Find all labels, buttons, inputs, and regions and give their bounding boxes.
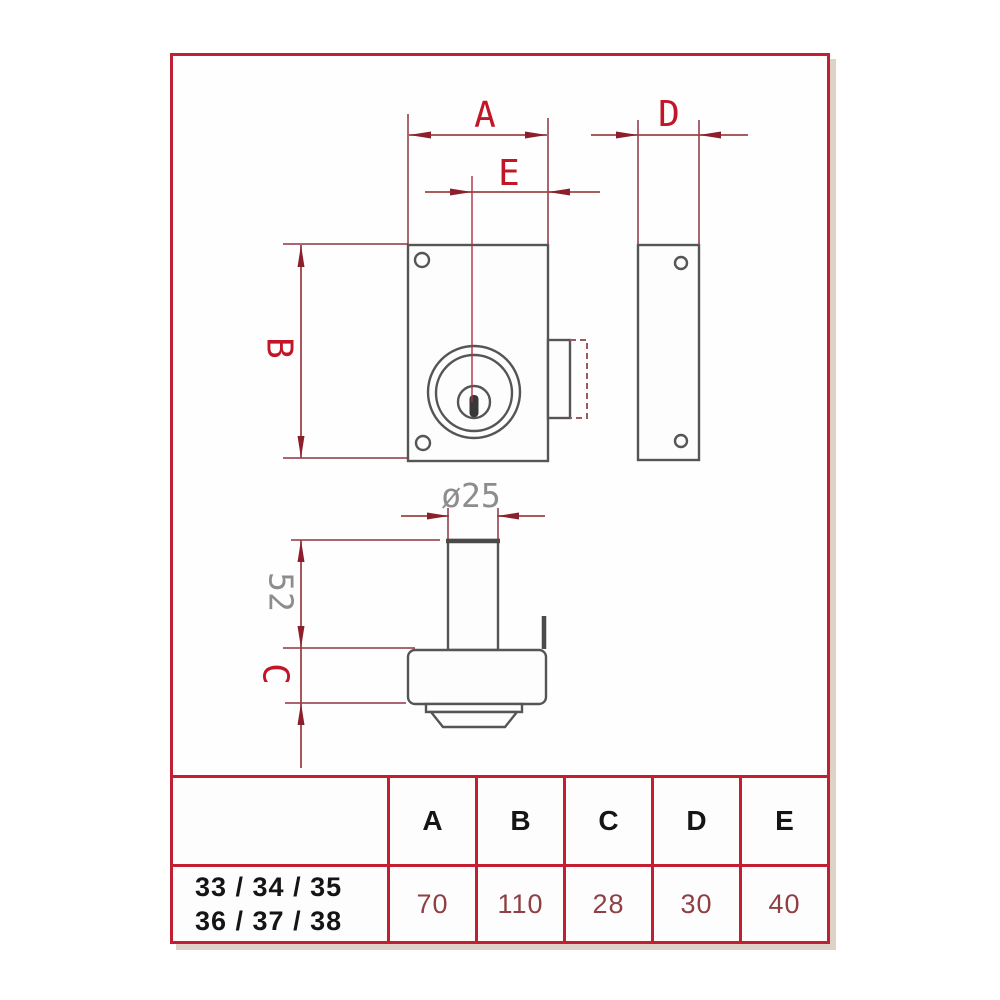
dimension-d: D <box>591 94 748 244</box>
model-numbers-line1: 33 / 34 / 35 <box>195 870 342 904</box>
latch-bolt <box>548 340 570 418</box>
front-view <box>408 245 587 461</box>
value-c: 28 <box>563 864 651 941</box>
mounting-hole-top <box>415 253 429 267</box>
label-a: A <box>474 95 496 136</box>
arrow-left-icon <box>409 132 431 139</box>
table-header-b: B <box>475 778 563 864</box>
arrow-right-icon <box>525 132 547 139</box>
dimension-a: A <box>408 95 548 244</box>
table-header-c: C <box>563 778 651 864</box>
label-b: B <box>258 337 299 359</box>
strike-hole-top <box>675 257 687 269</box>
key-slot <box>470 395 479 417</box>
arrow-left-icon <box>699 132 721 139</box>
table-header-e: E <box>739 778 827 864</box>
dimension-diameter: ø25 <box>401 476 545 539</box>
dimension-b: B <box>258 244 408 458</box>
model-numbers-cell: 33 / 34 / 35 36 / 37 / 38 <box>173 864 387 941</box>
label-e: E <box>498 153 520 194</box>
arrow-up-icon <box>298 245 305 267</box>
drawing-sheet: A E D <box>0 0 1000 1000</box>
arrow-right-icon <box>616 132 638 139</box>
value-e: 40 <box>739 864 827 941</box>
model-numbers-line2: 36 / 37 / 38 <box>195 904 342 938</box>
arrow-left-icon <box>548 189 570 196</box>
value-b: 110 <box>475 864 563 941</box>
profile-view <box>408 540 546 727</box>
mounting-hole-bottom <box>416 436 430 450</box>
technical-drawing: A E D <box>173 56 827 778</box>
table-header-d: D <box>651 778 739 864</box>
body-profile <box>408 650 546 704</box>
strike-plate <box>638 245 699 460</box>
label-diameter: ø25 <box>441 476 501 515</box>
table-corner-cell <box>173 778 387 864</box>
latch-bolt-hidden-outline <box>570 340 587 418</box>
arrow-up-icon <box>298 540 305 562</box>
strike-hole-bottom <box>675 435 687 447</box>
arrow-down-icon <box>298 626 305 648</box>
body-profile-cap <box>431 712 517 727</box>
frame-border: A E D <box>170 53 830 944</box>
label-c: C <box>254 663 295 685</box>
label-52: 52 <box>261 572 300 612</box>
spec-table: A B C D E 33 / 34 / 35 36 / 37 / 38 70 1… <box>173 775 827 941</box>
arrow-right-icon <box>450 189 472 196</box>
value-d: 30 <box>651 864 739 941</box>
strike-plate-view <box>638 245 699 460</box>
label-d: D <box>658 94 680 135</box>
value-a: 70 <box>387 864 475 941</box>
table-header-a: A <box>387 778 475 864</box>
arrow-up-icon <box>298 703 305 725</box>
cylinder-profile <box>448 540 498 650</box>
arrow-down-icon <box>298 436 305 458</box>
